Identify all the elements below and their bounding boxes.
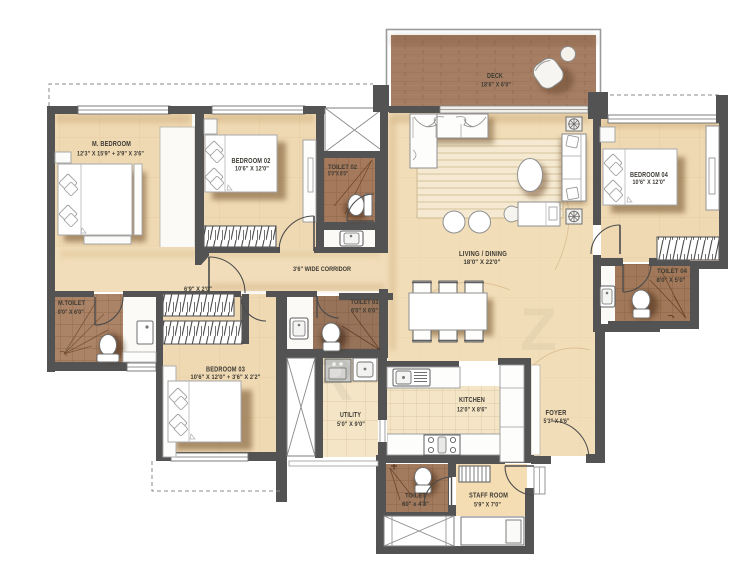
svg-text:60" x 4'3": 60" x 4'3" <box>402 502 429 508</box>
svg-text:FOYER: FOYER <box>546 408 567 417</box>
svg-text:TOILET 04: TOILET 04 <box>657 269 688 275</box>
svg-text:5'9" X 7'0": 5'9" X 7'0" <box>474 502 501 509</box>
svg-text:M.TOILET: M.TOILET <box>58 301 85 307</box>
svg-text:5'0"X 8'0": 5'0"X 8'0" <box>328 172 348 178</box>
svg-text:TOILET 02: TOILET 02 <box>328 165 358 171</box>
svg-text:3'6" WIDE CORRIDOR: 3'6" WIDE CORRIDOR <box>293 267 352 273</box>
svg-text:KITCHEN: KITCHEN <box>459 395 485 404</box>
svg-text:DECK: DECK <box>487 71 503 80</box>
svg-text:10'6" X 12'0": 10'6" X 12'0" <box>235 166 269 173</box>
svg-text:Z: Z <box>520 296 559 363</box>
svg-text:8'0" X 5'0": 8'0" X 5'0" <box>657 278 686 284</box>
svg-text:12'3" X 15'9" + 3'9" X 3'6": 12'3" X 15'9" + 3'9" X 3'6" <box>77 151 144 158</box>
svg-text:5'0" X 9'0": 5'0" X 9'0" <box>337 421 365 428</box>
svg-text:LIVING / DINING: LIVING / DINING <box>459 249 507 258</box>
svg-text:R: R <box>310 346 355 413</box>
svg-text:18'0" X 22'0": 18'0" X 22'0" <box>464 259 501 266</box>
svg-text:9'0" X 6'0": 9'0" X 6'0" <box>58 310 84 316</box>
svg-text:5'3" X 8'6": 5'3" X 8'6" <box>544 418 570 425</box>
svg-text:18'6" X 6'0": 18'6" X 6'0" <box>481 82 511 89</box>
svg-text:STAFF ROOM: STAFF ROOM <box>469 491 508 500</box>
svg-text:BEDROOM 02: BEDROOM 02 <box>232 156 271 165</box>
svg-text:TOILET: TOILET <box>405 494 426 500</box>
svg-text:M. BEDROOM: M. BEDROOM <box>92 139 131 148</box>
svg-text:UTILITY: UTILITY <box>340 410 361 419</box>
svg-text:BEDROOM 04: BEDROOM 04 <box>630 170 668 179</box>
svg-text:TOILET 03: TOILET 03 <box>351 300 380 306</box>
svg-text:6'9" X 2'0": 6'9" X 2'0" <box>184 287 212 293</box>
svg-text:BEDROOM 03: BEDROOM 03 <box>206 365 245 374</box>
svg-text:6'0" X 6'0": 6'0" X 6'0" <box>351 309 378 315</box>
svg-text:10'6" X 12'0": 10'6" X 12'0" <box>633 179 666 186</box>
svg-text:12'0" X 8'6": 12'0" X 8'6" <box>457 407 487 414</box>
svg-text:10'6" X 12'0" + 3'6" X 2'2": 10'6" X 12'0" + 3'6" X 2'2" <box>191 374 261 381</box>
